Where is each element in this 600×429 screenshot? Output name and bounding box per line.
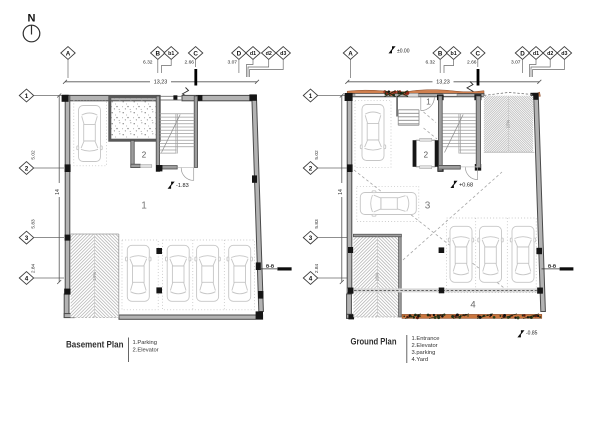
svg-text:2: 2	[309, 165, 313, 172]
svg-text:5.83: 5.83	[314, 219, 320, 229]
svg-text:5.02: 5.02	[314, 150, 320, 160]
svg-text:b1: b1	[451, 51, 457, 57]
svg-text:3: 3	[425, 201, 431, 212]
svg-text:d1: d1	[250, 51, 256, 57]
svg-text:1: 1	[426, 97, 431, 107]
svg-text:2.66: 2.66	[467, 60, 477, 66]
svg-text:D: D	[237, 50, 242, 57]
svg-text:15%: 15%	[92, 272, 97, 281]
svg-text:5.83: 5.83	[31, 219, 37, 229]
svg-text:1: 1	[309, 93, 313, 100]
svg-text:C: C	[193, 50, 198, 57]
svg-text:6.32: 6.32	[143, 60, 153, 66]
svg-text:D: D	[520, 50, 525, 57]
svg-text:3.07: 3.07	[511, 60, 521, 66]
svg-text:1.Parking: 1.Parking	[133, 340, 158, 346]
svg-text:b1: b1	[168, 51, 174, 57]
svg-text:14: 14	[338, 189, 344, 195]
svg-text:14: 14	[55, 189, 61, 195]
svg-text:13,23: 13,23	[436, 80, 450, 86]
svg-text:4: 4	[470, 300, 475, 311]
svg-text:d2: d2	[547, 51, 553, 57]
svg-text:B: B	[156, 50, 161, 57]
svg-text:15%: 15%	[506, 120, 511, 129]
svg-text:2: 2	[25, 165, 29, 172]
svg-text:Basement Plan: Basement Plan	[66, 340, 124, 350]
svg-text:5.02: 5.02	[31, 150, 37, 160]
svg-text:15%: 15%	[375, 273, 380, 282]
svg-text:+0.68: +0.68	[459, 182, 473, 188]
svg-text:2.Elevator: 2.Elevator	[133, 348, 159, 354]
svg-text:d1: d1	[533, 51, 539, 57]
svg-text:2: 2	[424, 151, 429, 160]
svg-text:3.07: 3.07	[228, 60, 238, 66]
svg-text:13,23: 13,23	[154, 80, 168, 86]
svg-text:2.84: 2.84	[314, 264, 320, 274]
svg-text:B-B: B-B	[548, 264, 557, 269]
svg-text:3.parking: 3.parking	[412, 350, 436, 356]
svg-text:1.Entrance: 1.Entrance	[412, 336, 440, 342]
svg-text:Ground Plan: Ground Plan	[351, 337, 397, 347]
svg-text:d3: d3	[561, 51, 567, 57]
svg-text:C: C	[476, 50, 481, 57]
svg-text:4.Yard: 4.Yard	[412, 357, 429, 363]
svg-text:d2: d2	[266, 51, 272, 57]
svg-text:6.32: 6.32	[426, 60, 436, 66]
svg-text:d3: d3	[280, 51, 286, 57]
svg-text:4: 4	[25, 275, 29, 282]
svg-text:2.Elevator: 2.Elevator	[412, 343, 438, 349]
svg-text:B: B	[438, 50, 443, 57]
svg-text:-0.85: -0.85	[526, 331, 538, 337]
svg-text:1: 1	[25, 93, 29, 100]
svg-text:N: N	[28, 13, 36, 25]
svg-text:2: 2	[142, 151, 147, 160]
svg-text:2.84: 2.84	[31, 264, 37, 274]
svg-text:1: 1	[141, 201, 147, 212]
svg-text:±0.00: ±0.00	[397, 49, 410, 55]
svg-text:A: A	[66, 50, 71, 57]
svg-text:4: 4	[309, 275, 313, 282]
svg-text:B-B: B-B	[266, 264, 275, 269]
svg-text:3: 3	[309, 235, 313, 242]
svg-text:-1.83: -1.83	[176, 183, 189, 189]
svg-text:2.66: 2.66	[185, 60, 195, 66]
svg-text:3: 3	[25, 235, 29, 242]
svg-text:A: A	[348, 50, 353, 57]
